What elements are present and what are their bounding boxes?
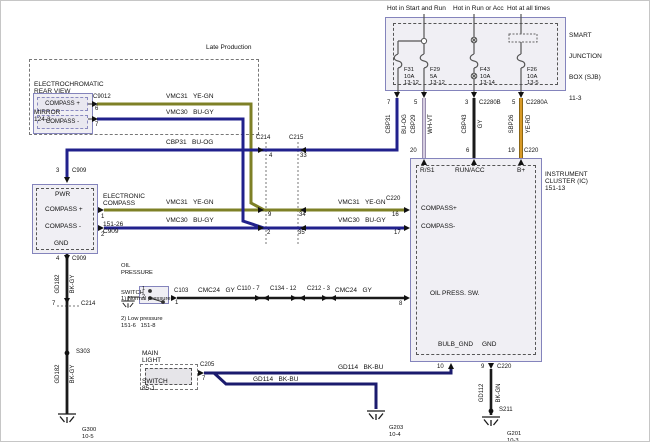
sjb-pin-3: 3 — [465, 100, 468, 106]
ic-conn-c220-bottom: C220 — [497, 364, 511, 370]
ic-conn-c220-top: C220 — [524, 148, 538, 154]
connector-c205: C205 — [200, 362, 214, 368]
connector-c2280b: C2280B — [479, 100, 501, 106]
ic-pin-20: 20 — [410, 148, 417, 154]
inline-c212: C212 - 3 — [307, 286, 330, 292]
c214-pin-2: 2 — [267, 230, 270, 236]
splice-s303-icon — [65, 351, 70, 356]
ground-g203-label: G20310-4 — [389, 412, 403, 442]
compass-pin-4: 4 — [56, 256, 59, 262]
ic-pin-8: 8 — [399, 301, 402, 307]
compass-conn-bottom: C909 — [72, 256, 86, 262]
wiring-diagram-page: COMPASS + COMPASS - PWR COMPASS + COMPAS… — [0, 0, 650, 442]
mirror-pin-6: 6 — [95, 106, 98, 112]
wire-label-cmc24-a: CMC24 GY — [198, 288, 235, 295]
ic-pin-6: 6 — [466, 148, 469, 154]
wire-label-cmc24-b: CMC24 GY — [335, 288, 372, 295]
feed-hot-start-run: Hot in Start and Run — [387, 6, 446, 13]
wire-label-gd114-b: GD114 BK-BU — [253, 377, 298, 384]
compass-pin-1: 1 — [101, 214, 104, 220]
ground-g300-icon — [58, 414, 76, 423]
sjb-pin-5a: 5 — [414, 100, 417, 106]
wire-label-vmc30-mirror: VMC30 BU-GY — [166, 110, 214, 117]
ground-g203-icon — [367, 411, 385, 420]
compass-name: ELECTRONICCOMPASS 151-26C909 — [103, 179, 145, 249]
ic-pin-17: 17 — [394, 230, 401, 236]
ic-pin-10: 10 — [437, 364, 444, 370]
sjb-pin-5b: 5 — [512, 100, 515, 106]
ic-conn-c220-left: C220 — [386, 196, 400, 202]
c215-pin-34: 34 — [299, 212, 306, 218]
c214-pin-4: 4 — [269, 153, 272, 159]
wire-label-gd114-a: GD114 BK-BU — [338, 365, 383, 372]
ic-port-rs1: R/S1 — [420, 168, 434, 175]
compass-port-pwr: PWR — [55, 192, 70, 199]
ground-g201-icon — [482, 417, 500, 426]
sjb-pin-7: 7 — [387, 100, 390, 106]
fuse-f29-label: F295A13-12 — [430, 54, 445, 100]
ic-pin-16: 16 — [392, 212, 399, 218]
ic-port-bulb-gnd: BULB_GND — [438, 342, 473, 349]
late-production-label: Late Production — [206, 45, 252, 52]
splice-s211-icon — [489, 409, 494, 414]
c215-pin-33: 33 — [300, 153, 307, 159]
feed-hot-run-acc: Hot in Run or Acc — [453, 6, 504, 13]
ic-port-gnd: GND — [482, 342, 496, 349]
connector-c2280a: C2280A — [526, 100, 548, 106]
wire-label-vmc30-compass: VMC30 BU-GY — [166, 218, 214, 225]
ic-port-runacc: RUN/ACC — [455, 168, 485, 175]
compass-port-minus: COMPASS - — [45, 224, 81, 231]
ground-g201-label: G20110-3 — [507, 418, 521, 442]
light-switch-name: MAINLIGHT SWITCH85-1 — [142, 336, 168, 406]
connector-c215: C215 — [289, 135, 303, 141]
oil-switch-name: OILPRESSURE SWITCH1) Normal pressure 2) … — [121, 250, 171, 342]
ground-g300-label: G30010-5 — [82, 414, 96, 442]
ic-port-compass-minus: COMPASS- — [421, 224, 455, 231]
wire-label-vmc30-ic: VMC30 BU-GY — [338, 218, 386, 225]
compass-conn-top: C909 — [72, 168, 86, 174]
connector-c103: C103 — [174, 288, 188, 294]
splice-s303-label: S303 — [76, 349, 90, 355]
wire-label-vmc31-ic: VMC31 YE-GN — [338, 200, 386, 207]
compass-port-gnd: GND — [54, 241, 68, 248]
wire-label-vmc31-compass: VMC31 YE-GN — [166, 200, 214, 207]
compass-pin-2: 2 — [101, 232, 104, 238]
compass-port-plus: COMPASS + — [45, 207, 83, 214]
c215-pin-35: 35 — [298, 230, 305, 236]
feed-hot-all-times: Hot at all times — [507, 6, 550, 13]
c214-gnd-label: C214 — [81, 301, 95, 307]
c214-gnd-pin-7: 7 — [52, 301, 55, 307]
connector-c9012: C9012 — [93, 94, 111, 100]
ic-port-oil-press: OIL PRESS. SW. — [430, 291, 480, 298]
ic-inner-outline — [416, 165, 536, 355]
oil-pin-1: 1 — [175, 300, 178, 306]
inline-c134: C134 - 12 — [270, 286, 296, 292]
oil-contact-2: 2 — [142, 295, 145, 301]
ic-port-bplus: B+ — [517, 168, 525, 175]
wire-gd114 — [204, 369, 451, 409]
compass-box: PWR COMPASS + COMPASS - GND — [32, 184, 98, 254]
compass-pin-3: 3 — [56, 168, 59, 174]
wire-label-vmc31-mirror: VMC31 YE-GN — [166, 94, 214, 101]
fuse-f31-label: F3110A13-12 — [404, 54, 419, 100]
c214-pin-9: 9 — [268, 212, 271, 218]
ic-name: INSTRUMENTCLUSTER (IC)151-13 — [545, 157, 588, 206]
fuse-f43-label: F4310A13-14 — [480, 54, 495, 100]
oil-contact-1: 1 — [142, 287, 145, 293]
inline-c110: C110 - 7 — [237, 286, 260, 292]
ic-pin-19: 19 — [508, 148, 515, 154]
sjb-name: SMART JUNCTION BOX (SJB) 11-3 — [569, 18, 602, 116]
wire-label-cbp31-h: CBP31 BU-OG — [166, 140, 213, 147]
mirror-pin-7: 7 — [95, 122, 98, 128]
light-switch-pin-7: 7 — [202, 376, 205, 382]
connector-c214: C214 — [256, 135, 270, 141]
ic-box — [410, 158, 542, 362]
ic-port-compass-plus: COMPASS+ — [421, 206, 457, 213]
mirror-name: ELECTROCHROMATICREAR VIEW MIRROR124-3 — [34, 67, 104, 137]
ic-pin-9: 9 — [481, 364, 484, 370]
splice-s211-label: S211 — [499, 407, 513, 413]
fuse-f26-label: F2610A13-5 — [527, 54, 539, 100]
